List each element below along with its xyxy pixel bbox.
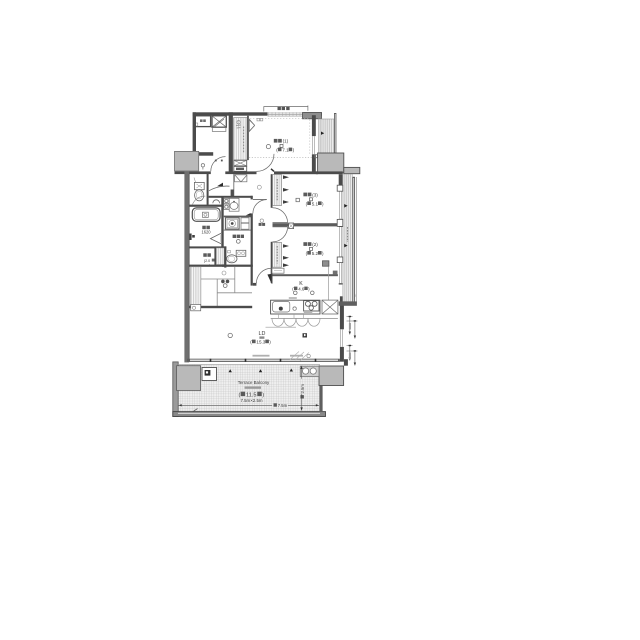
svg-text:7.1: 7.1 [282,148,289,153]
svg-text:7.5m: 7.5m [278,403,288,408]
svg-text:15.3: 15.3 [256,339,265,344]
svg-text:5.1: 5.1 [312,201,319,206]
svg-text:): ) [262,393,264,399]
svg-text:(3): (3) [312,192,318,197]
svg-text:(2): (2) [312,242,318,247]
svg-text:(1): (1) [283,139,289,144]
svg-text:4.6: 4.6 [298,286,305,291]
svg-text:5.2: 5.2 [312,251,319,256]
svg-text:Terrace Balcony: Terrace Balcony [238,380,270,385]
svg-text:LD: LD [259,331,266,337]
svg-text:7.5m×2.5m: 7.5m×2.5m [240,398,262,403]
svg-text:2.5m: 2.5m [300,384,305,394]
svg-text:(2.0: (2.0 [204,259,210,263]
svg-text:1620: 1620 [201,229,211,234]
